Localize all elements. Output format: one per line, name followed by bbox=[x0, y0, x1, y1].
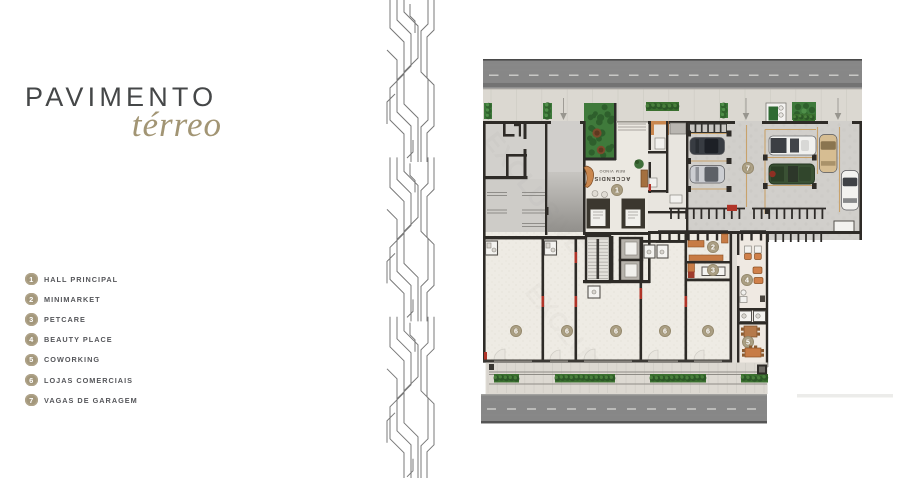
svg-text:3: 3 bbox=[711, 267, 715, 275]
svg-text:6: 6 bbox=[614, 328, 618, 336]
svg-text:5: 5 bbox=[746, 339, 750, 347]
svg-text:ACCENDIS: ACCENDIS bbox=[594, 175, 631, 181]
svg-text:7: 7 bbox=[746, 165, 750, 173]
svg-text:4: 4 bbox=[745, 277, 749, 285]
svg-text:6: 6 bbox=[514, 328, 518, 336]
svg-text:6: 6 bbox=[565, 328, 569, 336]
svg-text:2: 2 bbox=[711, 244, 715, 252]
svg-text:6: 6 bbox=[706, 328, 710, 336]
svg-text:1: 1 bbox=[615, 187, 619, 195]
svg-text:BEM VINDO: BEM VINDO bbox=[599, 169, 625, 173]
svg-text:6: 6 bbox=[663, 328, 667, 336]
